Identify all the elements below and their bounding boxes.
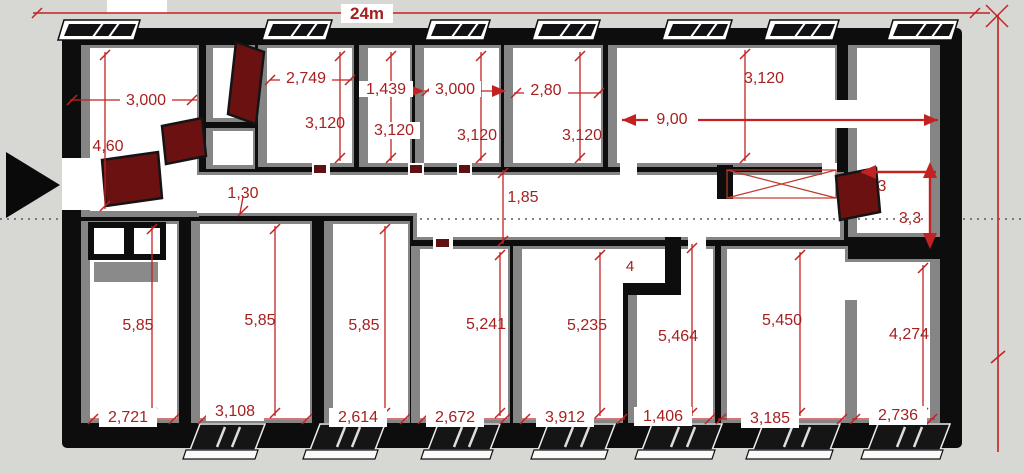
dim-corridor-main: 1,85	[507, 189, 538, 206]
dim-room-depth: 5,85	[244, 312, 275, 329]
dim-room-depth: 3,120	[457, 127, 497, 144]
floor-plan-page: 24m 3,000 4,60 2,749 3,120 1,439 3,120 3…	[0, 0, 1024, 474]
window-icon	[887, 20, 958, 40]
dim-room-width: 2,736	[878, 407, 918, 424]
l-wall-horizontal	[623, 283, 681, 295]
window-icon	[662, 20, 732, 40]
dim-room-depth: 5,450	[762, 312, 802, 329]
door-top-left-upper	[228, 42, 264, 124]
floor-plan-canvas: 24m 3,000 4,60 2,749 3,120 1,439 3,120 3…	[0, 0, 1024, 474]
dim-room-depth: 5,85	[348, 317, 379, 334]
dim-room-width: 3,000	[435, 81, 475, 98]
dim-room-depth: 5,85	[122, 317, 153, 334]
window-icon	[532, 20, 600, 40]
dim-room-depth: 3,120	[744, 70, 784, 87]
room-top-2	[267, 48, 352, 163]
corridor-main	[417, 175, 840, 237]
closet-b-floor	[134, 228, 160, 254]
room-top-5	[513, 48, 601, 163]
room-small-lower	[213, 131, 253, 165]
dim-room-width: 3,108	[215, 403, 255, 420]
dim-room-depth: 3,120	[562, 127, 602, 144]
dim-room-depth: 5,241	[466, 316, 506, 333]
dim-room-width: 2,721	[108, 409, 148, 426]
dim-total-width: 24m	[350, 4, 384, 23]
dim-room-depth: 3,120	[305, 115, 345, 132]
dim-room-depth: 4,60	[92, 138, 123, 155]
room-top-3	[368, 48, 410, 163]
dim-room-width: 2,614	[338, 409, 378, 426]
dim-room-width: 2,672	[435, 409, 475, 426]
dim-nook-label: 4	[626, 258, 634, 275]
window-icon	[764, 20, 839, 40]
dim-room-width: 3,912	[545, 409, 585, 426]
room-top-4	[424, 48, 499, 163]
dim-room-depth: 5,235	[567, 317, 607, 334]
dim-room-width: 2,80	[530, 82, 561, 99]
dim-corridor-left: 1,30	[227, 185, 258, 202]
closet-wall-face	[94, 262, 158, 282]
window-icon	[425, 20, 490, 40]
dim-room-width: 3,185	[750, 410, 790, 427]
dim-room-depth: 5,464	[658, 328, 698, 345]
room-top-large	[617, 48, 835, 163]
entrance-door	[102, 152, 162, 206]
erasure-patch	[107, 0, 167, 13]
room-bottom-7	[727, 249, 845, 420]
room-bottom-6	[637, 295, 713, 420]
room-bottom-6-upper	[681, 249, 713, 295]
dim-room-depth: 3,120	[374, 122, 414, 139]
room-bottom-4	[420, 249, 508, 420]
dim-room-width: 3	[878, 178, 887, 195]
dim-room-width: 2,749	[286, 70, 326, 87]
dim-room-width: 3,000	[126, 92, 166, 109]
closet-a-floor	[94, 228, 124, 254]
window-icon	[262, 20, 332, 40]
window-icon	[58, 20, 140, 40]
dim-room-width: 1,406	[643, 408, 683, 425]
dim-room-depth: 4,274	[889, 326, 929, 343]
dim-room-depth: 3,3	[899, 210, 921, 227]
dim-room-width: 9,00	[656, 111, 687, 128]
dim-room-width: 1,439	[366, 81, 406, 98]
door-top-left-lower	[162, 118, 206, 164]
